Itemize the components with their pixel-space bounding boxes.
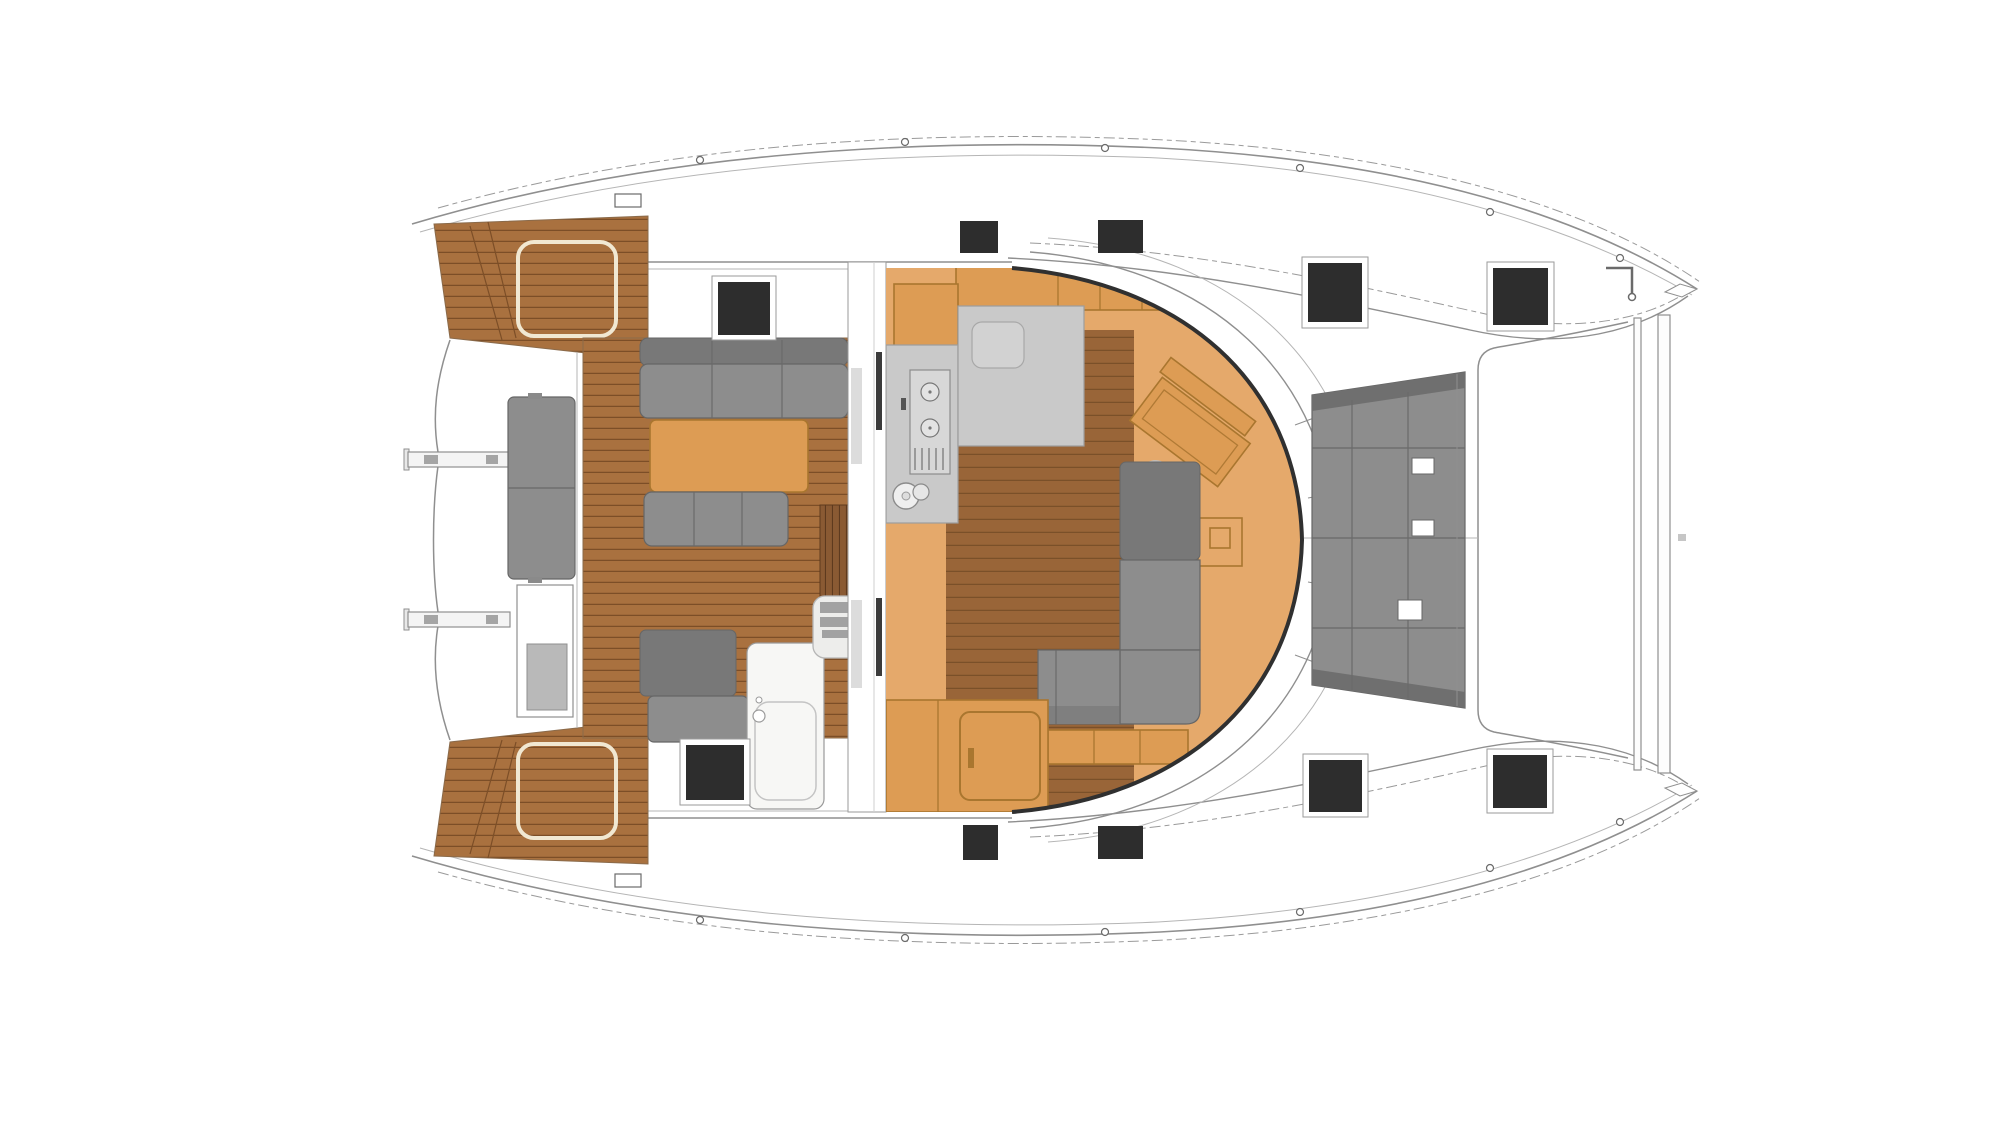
cockpit-table: [650, 420, 808, 492]
davit-arm-port: [404, 449, 510, 470]
deck-hatch: [1098, 220, 1143, 253]
aft-cockpit: [583, 338, 886, 809]
deck-hatch: [1493, 268, 1548, 325]
deck-hatch: [1098, 826, 1143, 859]
davit-arm-starboard: [404, 609, 510, 630]
forward-cockpit-coaming: [1478, 322, 1628, 758]
aft-sideboard: [886, 700, 1048, 812]
cockpit-sofa: [640, 338, 848, 418]
deck-hatch: [1308, 263, 1362, 322]
sofa-sideboard: [1048, 730, 1188, 764]
deck-hatch: [718, 282, 770, 335]
cockpit-corner-sofa: [640, 630, 748, 742]
small-fitting-mark: [1678, 534, 1686, 541]
deck-hatch: [1309, 760, 1362, 812]
saloon-bulkhead: [848, 262, 886, 812]
stern-furniture: [404, 393, 575, 717]
foredeck: [1304, 268, 1697, 796]
deck-hatch: [960, 221, 998, 253]
galley-corner-cabinet: [894, 284, 958, 348]
deck-hatch: [963, 825, 998, 860]
deck-hatch: [686, 745, 744, 800]
cockpit-bench: [644, 492, 788, 546]
aft-bench-seat: [508, 393, 575, 583]
sliding-door-track: [876, 352, 882, 430]
forward-cockpit-seats: [1312, 372, 1465, 708]
saloon: [886, 264, 1302, 812]
forward-crossbeam: [1634, 315, 1670, 773]
roof-fitting: [615, 194, 641, 207]
deck-hatch: [1493, 755, 1547, 808]
roof-fitting: [615, 874, 641, 887]
cockpit-module: [747, 643, 824, 809]
transom-locker: [517, 585, 573, 717]
deck-plan-canvas: [0, 0, 2001, 1125]
sliding-door-track: [876, 598, 882, 676]
anchor-fitting: [1606, 268, 1636, 301]
